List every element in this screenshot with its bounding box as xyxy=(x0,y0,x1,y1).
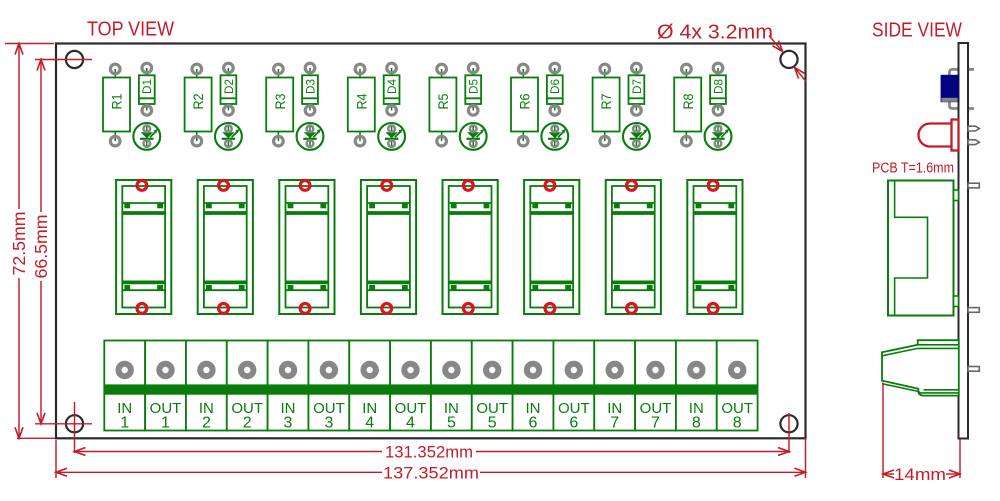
svg-text:2: 2 xyxy=(202,415,211,432)
svg-text:4: 4 xyxy=(365,415,374,432)
svg-text:Ø 4x 3.2mm: Ø 4x 3.2mm xyxy=(657,22,773,44)
svg-text:6: 6 xyxy=(569,415,578,432)
svg-text:6: 6 xyxy=(529,415,538,432)
svg-text:8: 8 xyxy=(692,415,701,432)
svg-text:R5: R5 xyxy=(435,93,451,109)
svg-text:D3: D3 xyxy=(305,79,317,94)
svg-text:66.5mm: 66.5mm xyxy=(31,215,51,279)
svg-text:1: 1 xyxy=(161,415,170,432)
svg-text:5: 5 xyxy=(488,415,497,432)
svg-text:7: 7 xyxy=(610,415,619,432)
svg-text:SIDE VIEW: SIDE VIEW xyxy=(872,20,962,42)
svg-text:D4: D4 xyxy=(387,78,399,94)
svg-text:137.352mm: 137.352mm xyxy=(383,463,479,482)
svg-text:TOP VIEW: TOP VIEW xyxy=(87,19,174,41)
svg-text:R8: R8 xyxy=(680,93,696,109)
svg-text:3: 3 xyxy=(284,415,293,432)
svg-text:5: 5 xyxy=(447,415,456,432)
svg-text:D1: D1 xyxy=(142,79,154,94)
svg-text:7: 7 xyxy=(651,415,660,432)
svg-text:3: 3 xyxy=(324,415,333,432)
svg-text:D2: D2 xyxy=(224,79,236,94)
svg-text:R7: R7 xyxy=(598,93,614,109)
svg-text:D8: D8 xyxy=(713,79,725,94)
svg-text:4: 4 xyxy=(406,415,415,432)
svg-text:8: 8 xyxy=(733,415,742,432)
svg-text:D6: D6 xyxy=(550,79,562,94)
svg-text:72.5mm: 72.5mm xyxy=(9,212,29,276)
svg-text:D5: D5 xyxy=(469,79,481,94)
svg-text:R2: R2 xyxy=(190,93,206,109)
svg-text:PCB T=1.6mm: PCB T=1.6mm xyxy=(872,160,954,176)
svg-text:D7: D7 xyxy=(632,79,644,94)
svg-text:1: 1 xyxy=(120,415,129,432)
svg-text:14mm: 14mm xyxy=(894,465,946,484)
svg-text:131.352mm: 131.352mm xyxy=(385,443,473,462)
svg-text:R4: R4 xyxy=(353,93,369,109)
svg-text:R6: R6 xyxy=(517,93,533,109)
svg-text:R3: R3 xyxy=(272,93,288,109)
svg-text:R1: R1 xyxy=(109,93,125,109)
svg-text:2: 2 xyxy=(243,415,252,432)
